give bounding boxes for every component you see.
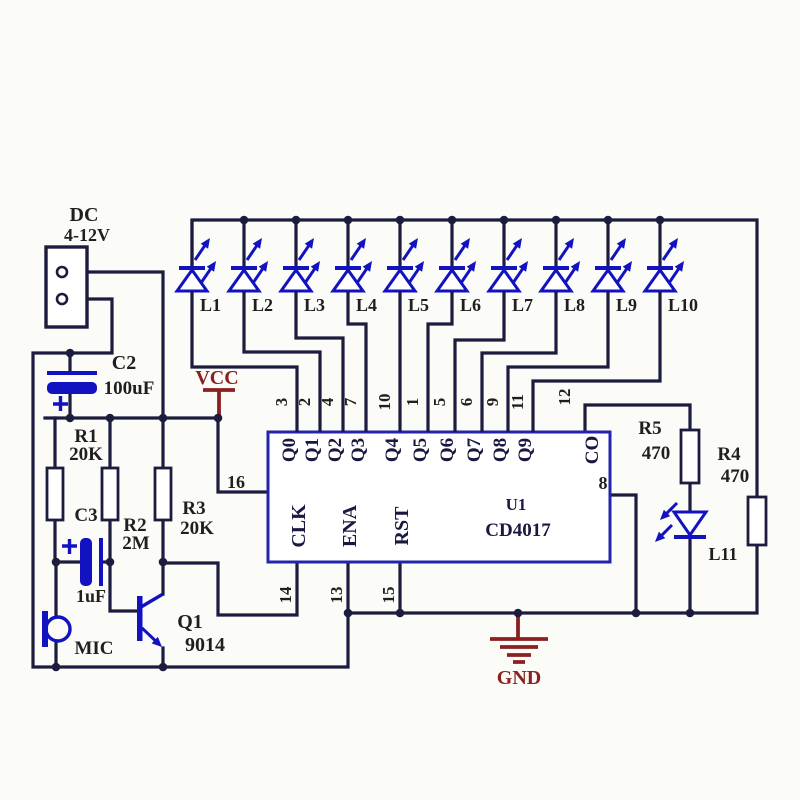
ic-pin8-num: 8 — [599, 473, 608, 493]
junction-dot — [106, 558, 115, 567]
q1-collector-diag — [141, 594, 163, 607]
dc-terminal-top — [57, 267, 67, 277]
resistor-r4 — [748, 497, 766, 545]
ic-pin-number: 5 — [430, 398, 449, 407]
junction-dot — [632, 609, 641, 618]
r5-value: 470 — [642, 443, 671, 464]
resistor-r3 — [155, 468, 171, 520]
led-label: L8 — [564, 295, 585, 315]
c2-value: 100uF — [104, 378, 155, 399]
l11-led-triangle — [674, 512, 706, 535]
c3-plate-positive — [80, 538, 92, 586]
junction-dot — [214, 414, 223, 423]
dc-connector-box — [46, 247, 87, 327]
ic-pin-number: 6 — [457, 398, 476, 407]
junction-dot — [292, 216, 301, 225]
junction-dot — [448, 216, 457, 225]
vcc-label: VCC — [195, 367, 238, 389]
wire-led-to-pin — [533, 291, 660, 432]
wire-led-to-pin — [428, 291, 452, 432]
ic-pin-label: CLK — [288, 504, 310, 548]
junction-dot — [396, 216, 405, 225]
ic-part: CD4017 — [485, 520, 551, 541]
ic-pin-label: Q5 — [410, 438, 431, 462]
ic-designator: U1 — [506, 495, 527, 514]
junction-dot — [552, 216, 561, 225]
junction-dot — [52, 558, 61, 567]
led-label: L10 — [668, 295, 698, 315]
junction-dot — [66, 349, 75, 358]
ic-pin-label: ENA — [339, 504, 361, 547]
q1-name: Q1 — [177, 611, 203, 633]
ic-pin-number: 7 — [341, 397, 360, 406]
led-label: L4 — [356, 295, 377, 315]
ic-pin-number: 11 — [508, 394, 527, 410]
junction-dot — [240, 216, 249, 225]
led-label: L5 — [408, 295, 429, 315]
r5-name: R5 — [638, 418, 661, 439]
ic-pin-label: CO — [582, 436, 603, 465]
junction-dot — [604, 216, 613, 225]
ic-pin-number: 9 — [483, 398, 502, 407]
dc-voltage: 4-12V — [64, 225, 110, 245]
resistor-r1 — [47, 468, 63, 520]
junction-dot — [514, 609, 523, 618]
ic-pin-number: 10 — [375, 394, 394, 411]
r2-value: 2M — [122, 533, 150, 554]
led-label: L9 — [616, 295, 637, 315]
dc-terminal-bottom — [57, 294, 67, 304]
schematic-svg: DC 4-12V C2 100uF R1 20K C3 R2 2M R3 20K… — [0, 0, 800, 800]
r4-value: 470 — [721, 466, 750, 487]
led-label: L2 — [252, 295, 273, 315]
ic-pin-number: 2 — [295, 398, 314, 407]
junction-dot — [396, 609, 405, 618]
dc-label: DC — [70, 204, 99, 226]
ic-pin-label: Q2 — [325, 438, 346, 462]
gnd-symbol — [490, 613, 548, 662]
l11-label: L11 — [708, 544, 737, 564]
junction-dot — [686, 609, 695, 618]
ic-pin-number: 1 — [403, 398, 422, 407]
junction-dot — [159, 414, 168, 423]
ic-pin-label: Q1 — [302, 438, 323, 462]
ic-pin-number: 13 — [327, 587, 346, 604]
ic-pin-number: 4 — [318, 397, 337, 406]
ic-pin-label: RST — [391, 506, 413, 546]
r3-name: R3 — [182, 498, 205, 519]
led-label: L1 — [200, 295, 221, 315]
junction-dot — [159, 663, 168, 672]
vcc-symbol — [203, 390, 235, 417]
c3-name: C3 — [74, 505, 97, 526]
c2-plus-icon — [53, 396, 68, 411]
junction-dot — [344, 609, 353, 618]
junction-dot — [66, 414, 75, 423]
ic-pin16-num: 16 — [227, 472, 245, 492]
ic-pin-number: 15 — [379, 587, 398, 604]
mic-body — [46, 617, 70, 641]
circuit-schematic: DC 4-12V C2 100uF R1 20K C3 R2 2M R3 20K… — [0, 0, 800, 800]
mic-label: MIC — [74, 638, 113, 659]
junction-dot — [52, 663, 61, 672]
r1-value: 20K — [69, 444, 103, 465]
ic-pin-label: Q4 — [382, 437, 403, 462]
junction-dot — [500, 216, 509, 225]
c2-plate-positive — [47, 382, 97, 394]
c3-plus-icon — [62, 539, 77, 554]
led-label: L6 — [460, 295, 481, 315]
junction-dot — [106, 414, 115, 423]
c3-value: 1uF — [76, 586, 106, 606]
resistor-r5 — [681, 430, 699, 483]
junction-dot — [159, 558, 168, 567]
ic-pin-label: Q9 — [515, 438, 536, 462]
ic-pin-number: 12 — [555, 389, 574, 406]
wire-vss-pin8 — [610, 495, 636, 613]
r4-name: R4 — [717, 444, 741, 465]
q1-value: 9014 — [185, 634, 225, 656]
ic-pin-label: Q8 — [490, 438, 511, 462]
ic-pin-label: Q6 — [437, 438, 458, 462]
gnd-label: GND — [497, 667, 541, 689]
led-label: L7 — [512, 295, 533, 315]
q1-base-bar — [137, 596, 143, 641]
resistor-r2 — [102, 468, 118, 520]
junction-dot — [656, 216, 665, 225]
ic-pin-label: Q0 — [279, 438, 300, 462]
junction-dot — [344, 216, 353, 225]
ic-pin-label: Q7 — [464, 437, 485, 462]
ic-pin-number: 14 — [276, 586, 295, 604]
ic-pin-label: Q3 — [348, 438, 369, 462]
r3-value: 20K — [180, 518, 214, 539]
c2-name: C2 — [112, 352, 136, 374]
led-label: L3 — [304, 295, 325, 315]
ic-pin-number: 3 — [272, 398, 291, 407]
